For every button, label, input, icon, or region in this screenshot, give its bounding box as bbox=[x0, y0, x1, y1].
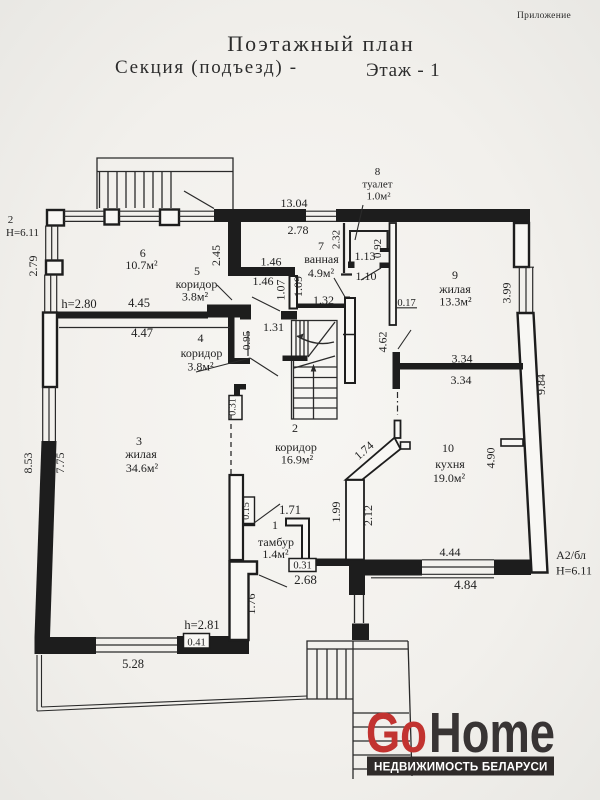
svg-text:1.99: 1.99 bbox=[329, 502, 343, 523]
svg-text:коридор: коридор bbox=[181, 346, 223, 360]
svg-text:1.09: 1.09 bbox=[291, 276, 305, 297]
svg-text:Поэтажный план: Поэтажный план bbox=[227, 31, 415, 56]
svg-text:3: 3 bbox=[136, 434, 142, 448]
svg-text:Н=6.11: Н=6.11 bbox=[556, 564, 592, 578]
svg-text:1: 1 bbox=[272, 518, 278, 532]
svg-text:туалет: туалет bbox=[362, 179, 392, 191]
svg-text:10: 10 bbox=[442, 441, 454, 455]
svg-text:4.62: 4.62 bbox=[376, 332, 390, 353]
svg-text:13.04: 13.04 bbox=[281, 196, 308, 210]
svg-text:Приложение: Приложение bbox=[517, 11, 571, 21]
svg-text:0.31: 0.31 bbox=[293, 561, 311, 572]
svg-text:Секция (подъезд) -: Секция (подъезд) - bbox=[115, 57, 298, 78]
svg-text:Go: Go bbox=[366, 701, 427, 765]
svg-text:4.9м²: 4.9м² bbox=[308, 266, 335, 280]
svg-text:7: 7 bbox=[318, 239, 324, 253]
svg-text:кухня: кухня bbox=[435, 457, 465, 471]
svg-text:1.71: 1.71 bbox=[279, 503, 301, 517]
svg-text:19.0м²: 19.0м² bbox=[433, 471, 466, 485]
svg-text:1.4м²: 1.4м² bbox=[262, 547, 289, 561]
svg-text:1.31: 1.31 bbox=[263, 320, 284, 334]
svg-text:2: 2 bbox=[292, 421, 298, 435]
svg-text:2: 2 bbox=[8, 214, 14, 226]
svg-text:Этаж - 1: Этаж - 1 bbox=[366, 60, 440, 81]
svg-text:0.17: 0.17 bbox=[397, 298, 415, 309]
svg-text:4: 4 bbox=[198, 331, 204, 345]
svg-text:1.46: 1.46 bbox=[253, 274, 274, 288]
svg-text:34.6м²: 34.6м² bbox=[126, 461, 159, 475]
svg-text:h=2.81: h=2.81 bbox=[184, 618, 219, 632]
svg-text:h=2.80: h=2.80 bbox=[61, 297, 96, 311]
svg-text:0.41: 0.41 bbox=[187, 638, 205, 649]
svg-text:1.76: 1.76 bbox=[244, 594, 258, 615]
svg-text:4.47: 4.47 bbox=[131, 326, 153, 340]
svg-text:3.8м²: 3.8м² bbox=[182, 290, 209, 304]
svg-text:4.45: 4.45 bbox=[128, 296, 150, 310]
svg-text:НЕДВИЖИМОСТЬ БЕЛАРУСИ: НЕДВИЖИМОСТЬ БЕЛАРУСИ bbox=[374, 761, 548, 774]
svg-text:Home: Home bbox=[429, 701, 555, 765]
svg-text:16.9м²: 16.9м² bbox=[281, 453, 314, 467]
svg-text:1.07: 1.07 bbox=[274, 280, 288, 301]
svg-text:7.75: 7.75 bbox=[53, 453, 67, 474]
svg-text:1.32: 1.32 bbox=[313, 293, 334, 307]
svg-text:1.10: 1.10 bbox=[356, 269, 377, 283]
svg-text:5.28: 5.28 bbox=[122, 657, 144, 671]
svg-text:0.95: 0.95 bbox=[241, 330, 253, 350]
svg-text:10.7м²: 10.7м² bbox=[125, 258, 158, 272]
svg-text:4.90: 4.90 bbox=[484, 448, 498, 469]
svg-text:9: 9 bbox=[452, 268, 458, 282]
svg-text:2.32: 2.32 bbox=[331, 230, 343, 249]
svg-text:1.46: 1.46 bbox=[261, 255, 282, 269]
svg-text:2.79: 2.79 bbox=[26, 256, 40, 277]
svg-text:ванная: ванная bbox=[304, 252, 339, 266]
svg-text:2.78: 2.78 bbox=[288, 223, 309, 237]
svg-text:Н=6.11: Н=6.11 bbox=[6, 227, 39, 239]
svg-text:0.31: 0.31 bbox=[228, 398, 239, 416]
svg-text:4.84: 4.84 bbox=[454, 577, 477, 592]
svg-text:0.92: 0.92 bbox=[372, 239, 384, 258]
svg-text:5: 5 bbox=[194, 264, 200, 278]
svg-text:3.34: 3.34 bbox=[452, 352, 473, 366]
svg-text:8.53: 8.53 bbox=[21, 453, 35, 474]
svg-text:1.0м²: 1.0м² bbox=[366, 191, 391, 203]
svg-text:13.3м²: 13.3м² bbox=[439, 295, 472, 309]
svg-text:3.34: 3.34 bbox=[451, 373, 472, 387]
svg-text:3.8м²: 3.8м² bbox=[187, 360, 214, 374]
svg-text:3.99: 3.99 bbox=[500, 283, 514, 304]
svg-text:9.84: 9.84 bbox=[534, 374, 548, 395]
svg-text:0.15: 0.15 bbox=[241, 502, 252, 520]
svg-text:2.12: 2.12 bbox=[361, 505, 375, 526]
svg-text:8: 8 bbox=[375, 166, 381, 178]
svg-text:жилая: жилая bbox=[124, 447, 157, 461]
svg-text:2.45: 2.45 bbox=[209, 245, 223, 266]
svg-text:4.44: 4.44 bbox=[440, 545, 461, 559]
svg-text:А2/бл: А2/бл bbox=[556, 548, 586, 562]
svg-text:2.68: 2.68 bbox=[294, 572, 317, 587]
